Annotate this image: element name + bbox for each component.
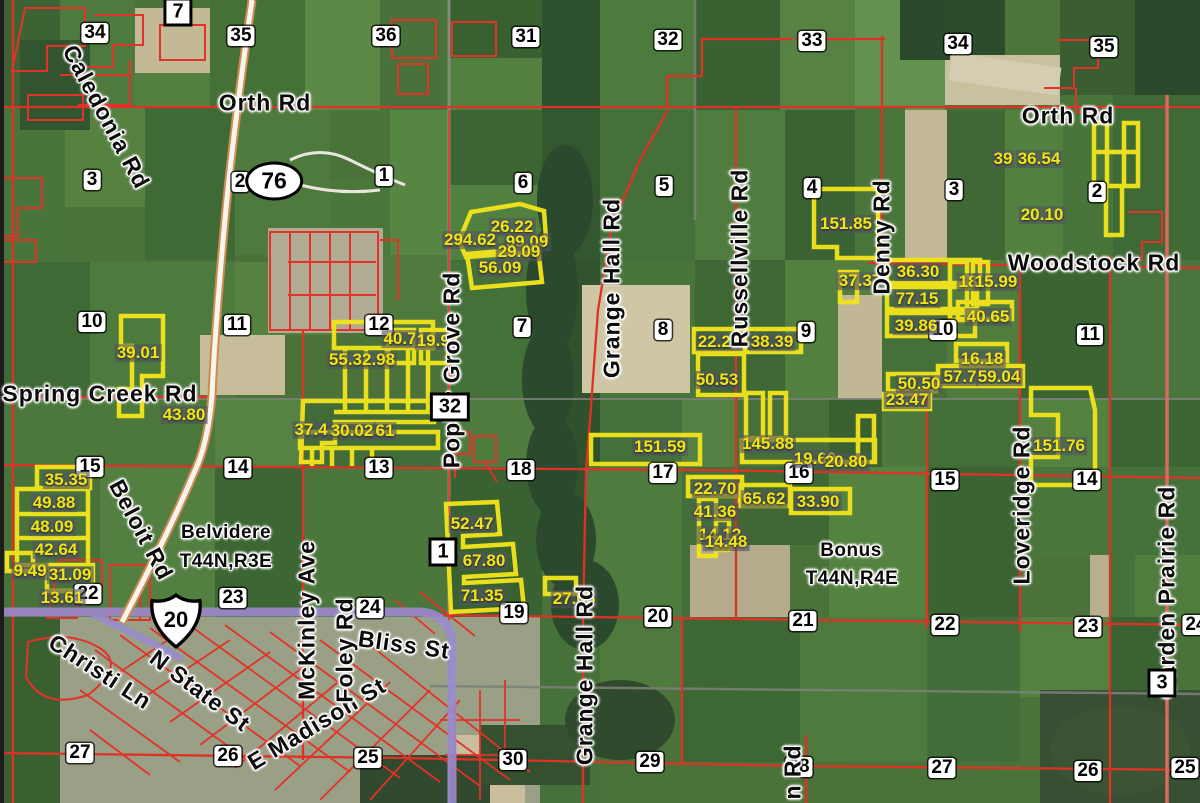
section-label: 4 bbox=[804, 178, 821, 198]
section-label: 23 bbox=[219, 588, 246, 608]
section-label: 23 bbox=[1074, 617, 1101, 637]
route-76-shield-number: 76 bbox=[261, 168, 287, 194]
parcel-acreage-label: 38.39 bbox=[749, 333, 796, 351]
parcel-acreage-label: 61 bbox=[374, 422, 397, 440]
parcel-acreage-label: 9.49 bbox=[11, 562, 48, 580]
parcel-acreage-label: 20.10 bbox=[1019, 206, 1066, 224]
section-label: 31 bbox=[512, 27, 539, 47]
county-route-box: 1 bbox=[428, 538, 457, 567]
parcel-acreage-label: 55.32.98 bbox=[327, 351, 397, 369]
parcel-acreage-label: 42.64 bbox=[33, 541, 80, 559]
township-label: Bonus bbox=[820, 540, 882, 562]
section-label: 32 bbox=[654, 30, 681, 50]
parcel-acreage-label: 65.62 bbox=[741, 490, 788, 508]
section-label: 15 bbox=[931, 470, 958, 490]
section-label: 34 bbox=[81, 23, 108, 43]
section-label: 14 bbox=[1073, 470, 1100, 490]
road-label: Poplar Grove Rd bbox=[439, 272, 466, 468]
section-label: 26 bbox=[214, 746, 241, 766]
parcel-acreage-label: 77.15 bbox=[894, 290, 941, 308]
parcel-acreage-label: 67.80 bbox=[461, 552, 508, 570]
parcel-acreage-label: 36.30 bbox=[895, 263, 942, 281]
parcel-acreage-label: 145.88 bbox=[740, 435, 796, 453]
parcel-acreage-label: 23.47 bbox=[884, 391, 931, 409]
parcel-acreage-label: 71.35 bbox=[459, 587, 506, 605]
road-label: Denny Rd bbox=[869, 179, 896, 294]
section-label: 36 bbox=[372, 26, 399, 46]
section-label: 19 bbox=[500, 603, 527, 623]
parcel-acreage-label: 22.70 bbox=[692, 480, 739, 498]
road-label: Loveridge Rd bbox=[1009, 426, 1036, 585]
section-label: 3 bbox=[946, 180, 963, 200]
parcel-acreage-label: 151.76 bbox=[1031, 437, 1087, 455]
parcel-acreage-label: 37.4 bbox=[292, 421, 329, 439]
section-label: 11 bbox=[1077, 325, 1103, 345]
section-label: 5 bbox=[656, 176, 673, 196]
map-root: 3435363132333435321654321011127891011151… bbox=[0, 0, 1200, 803]
section-label: 27 bbox=[928, 758, 955, 778]
parcel-acreage-label: 151.85 bbox=[818, 215, 874, 233]
township-label: Belvidere bbox=[181, 522, 271, 544]
section-label: 17 bbox=[649, 463, 676, 483]
road-label: Foley Rd bbox=[332, 597, 359, 702]
parcel-acreage-label: 294.62 bbox=[442, 231, 498, 249]
parcel-acreage-label: 56.09 bbox=[477, 259, 524, 277]
parcel-acreage-label: 35.35 bbox=[43, 471, 90, 489]
section-label: 25 bbox=[354, 748, 381, 768]
parcel-acreage-label: 52.47 bbox=[449, 515, 496, 533]
parcel-acreage-label: 59.04 bbox=[976, 368, 1023, 386]
section-label: 27 bbox=[66, 743, 93, 763]
section-label: 9 bbox=[798, 322, 815, 342]
section-label: 30 bbox=[499, 750, 526, 770]
county-route-box: 3 bbox=[1147, 669, 1176, 698]
us-20-shield-number: 20 bbox=[148, 607, 204, 633]
road-label: Spring Creek Rd bbox=[2, 381, 197, 408]
parcel-acreage-label: 40.7 bbox=[381, 330, 418, 348]
road-label: Garden Prairie Rd bbox=[1154, 486, 1181, 699]
parcel-acreage-label: 39.86 bbox=[893, 317, 940, 335]
road-label: Grange Hall Rd bbox=[599, 198, 626, 378]
section-label: 8 bbox=[655, 320, 672, 340]
section-label: 35 bbox=[1090, 37, 1117, 57]
section-label: 26 bbox=[1074, 761, 1101, 781]
parcel-acreage-label: 16.18 bbox=[959, 350, 1006, 368]
section-label: 6 bbox=[515, 173, 532, 193]
parcel-acreage-label: 20.80 bbox=[823, 453, 870, 471]
parcel-acreage-label: 13.61 bbox=[39, 589, 86, 607]
us-20-shield: 20 bbox=[148, 593, 204, 649]
section-label: 2 bbox=[1089, 182, 1106, 202]
county-route-box: 32 bbox=[430, 393, 470, 422]
road-label: Christi Ln bbox=[43, 629, 156, 716]
parcel-acreage-label: 40.65 bbox=[965, 308, 1012, 326]
section-label: 35 bbox=[227, 26, 254, 46]
section-label: 14 bbox=[224, 458, 251, 478]
section-label: 22 bbox=[931, 615, 958, 635]
road-label: Orth Rd bbox=[1022, 103, 1115, 130]
section-label: 29 bbox=[636, 752, 663, 772]
section-label: 24 bbox=[356, 598, 383, 618]
road-label: Caledonia Rd bbox=[57, 40, 155, 193]
parcel-acreage-label: 41.36 bbox=[692, 503, 739, 521]
road-label: Grange Hall Rd bbox=[572, 585, 599, 765]
road-label: Bliss St bbox=[356, 625, 451, 665]
parcel-acreage-label: 39.01 bbox=[115, 344, 162, 362]
section-label: 18 bbox=[507, 460, 534, 480]
township-label: T44N,R3E bbox=[180, 551, 273, 573]
parcel-acreage-label: 48.09 bbox=[29, 518, 76, 536]
parcel-acreage-label: 50.53 bbox=[694, 371, 741, 389]
section-label: 33 bbox=[798, 31, 825, 51]
parcel-acreage-label: 151.59 bbox=[632, 438, 688, 456]
section-label: 3 bbox=[84, 170, 101, 190]
parcel-acreage-label: 57.7 bbox=[941, 368, 978, 386]
road-label: McKinley Ave bbox=[294, 540, 321, 700]
road-label: Woodstock Rd bbox=[1008, 250, 1181, 277]
county-route-box: 7 bbox=[163, 0, 192, 27]
route-76-shield: 76 bbox=[245, 162, 303, 201]
road-label: N State St bbox=[145, 645, 256, 738]
road-label: Russellville Rd bbox=[727, 169, 754, 348]
parcel-acreage-label: 30.02 bbox=[329, 422, 376, 440]
road-label: n Rd bbox=[780, 744, 807, 799]
section-label: 24 bbox=[1182, 615, 1200, 635]
section-label: 1 bbox=[376, 166, 393, 186]
parcel-acreage-label: 36.54 bbox=[1016, 150, 1063, 168]
section-label: 34 bbox=[944, 34, 971, 54]
parcel-acreage-label: 39 bbox=[992, 150, 1015, 168]
parcel-acreage-label: 49.88 bbox=[31, 494, 78, 512]
section-label: 21 bbox=[789, 611, 816, 631]
label-layer: 3435363132333435321654321011127891011151… bbox=[0, 0, 1200, 803]
road-label: Orth Rd bbox=[219, 90, 312, 117]
parcel-acreage-label: 43.80 bbox=[161, 406, 208, 424]
section-label: 20 bbox=[644, 607, 671, 627]
section-label: 7 bbox=[514, 317, 531, 337]
section-label: 25 bbox=[1171, 758, 1198, 778]
parcel-acreage-label: 14.48 bbox=[703, 533, 750, 551]
parcel-acreage-label: 33.90 bbox=[795, 493, 842, 511]
section-label: 10 bbox=[78, 312, 105, 332]
parcel-acreage-label: 31.09 bbox=[47, 566, 94, 584]
section-label: 11 bbox=[224, 315, 250, 335]
road-label: Beloit Rd bbox=[103, 475, 178, 585]
section-label: 13 bbox=[365, 458, 392, 478]
township-label: T44N,R4E bbox=[806, 568, 899, 590]
